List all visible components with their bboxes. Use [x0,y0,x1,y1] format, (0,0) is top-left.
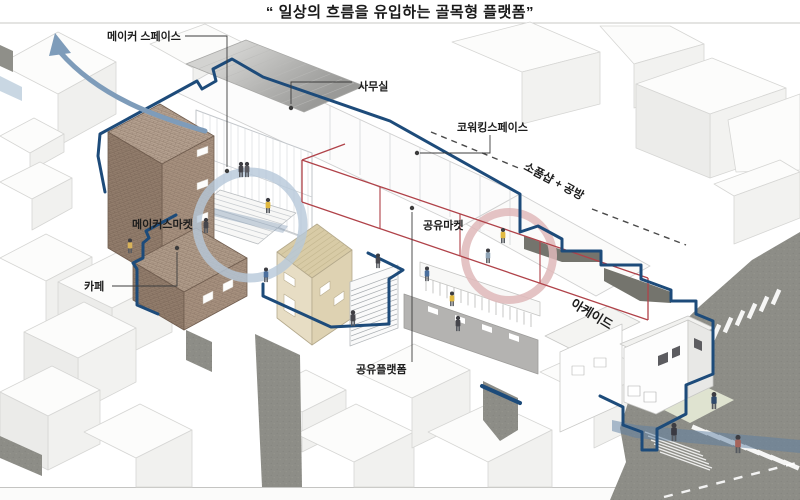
label-maker-space: 메이커 스페이스 [107,29,181,43]
label-coworking-space: 코워킹스페이스 [457,120,528,134]
label-office: 사무실 [358,79,388,93]
label-shared-platform: 공유플랫폼 [356,362,407,376]
label-shared-market: 공유마켓 [423,218,463,232]
site-axonometric-drawing: 메이커 스페이스 사무실 코워킹스페이스 메이커스마켓 카페 공유마켓 공유플랫… [0,0,800,500]
label-cafe: 카페 [84,279,104,293]
label-prop-shop-workshop: 소품샵 + 공방 [522,159,587,203]
label-makers-market: 메이커스마켓 [132,217,193,231]
stream-strip [0,76,22,101]
architectural-diagram: “ 일상의 흐름을 유입하는 골목형 플랫폼” [0,0,800,500]
alley [255,334,302,487]
